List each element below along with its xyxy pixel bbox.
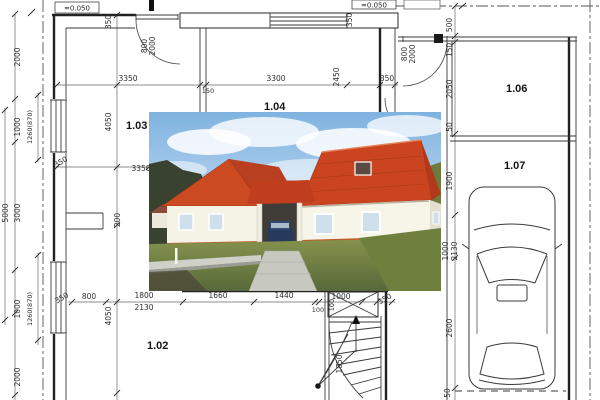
photo-post [175, 248, 178, 264]
dim-bot-1440: 1440 [274, 291, 293, 300]
photo-window [209, 214, 223, 230]
room-label-1-02: 1.02 [147, 340, 168, 352]
dim-left-3000: 3000 [13, 203, 22, 222]
room-label-1-04: 1.04 [264, 101, 286, 113]
dim-top-350: 350 [380, 74, 395, 83]
dim-right-50-bottom: 50 [443, 388, 452, 398]
dim-left-2000-top: 2000 [13, 47, 22, 66]
elevation-label-right: =0.050 [361, 2, 387, 10]
dim-inner-350: 350 [104, 15, 113, 30]
wall-stub [66, 213, 103, 229]
elevation-marks: =0.050 =0.050 [55, 0, 440, 13]
stair-newel-dot [315, 383, 321, 389]
house-photo [147, 112, 447, 291]
dim-bot-2130: 2130 [134, 303, 153, 312]
dim-top-3350: 3350 [118, 74, 137, 83]
dim-left-2000-bottom: 2000 [13, 367, 22, 386]
dim-stairs-100: 100 [328, 299, 336, 311]
dim-mid-3350: 3350 [131, 164, 150, 173]
elevation-label-left: =0.050 [64, 5, 90, 13]
dim-door1-2000: 2000 [148, 36, 157, 55]
dim-sill-top: 1260(870) [26, 110, 34, 144]
dim-bot-1800: 1800 [134, 291, 153, 300]
photo-window [179, 214, 193, 230]
dim-topwall-350: 350 [345, 13, 354, 28]
empty-box [404, 0, 440, 9]
dim-left-overall: 5000 [1, 203, 10, 222]
dim-inner-200: 200 [113, 213, 122, 228]
dim-inner-4050-bottom: 4050 [104, 306, 113, 325]
car-drawing [462, 187, 562, 389]
car-body [469, 187, 555, 389]
plan-svg: =0.050 =0.050 1.02 1.03 1.04 1.06 1.07 2… [0, 0, 600, 400]
car-windshield [477, 247, 547, 283]
top-wall-outline [180, 13, 398, 28]
dim-top-3300: 3300 [266, 74, 285, 83]
car-trunk-line [479, 380, 545, 385]
dim-right-2050: 2050 [445, 79, 454, 98]
dim-left-1000-top: 1000 [13, 117, 22, 136]
car-hood-line [474, 224, 550, 230]
dim-right-1900: 1900 [445, 171, 454, 190]
room-label-1-06: 1.06 [506, 83, 527, 95]
dim-stairs-1850: 1850 [335, 354, 344, 373]
car-sunroof [497, 285, 527, 301]
dim-bot-800: 800 [82, 292, 97, 301]
post-square [434, 34, 443, 43]
dim-door2-2000: 2000 [408, 44, 417, 63]
dim-right-500: 500 [445, 18, 454, 33]
dim-right-2130: 2130 [450, 241, 459, 260]
dim-sill-bottom: 1260(870) [26, 292, 34, 326]
dim-right-150: 150 [445, 43, 454, 58]
dim-bot-1660: 1660 [208, 291, 227, 300]
photo-skylight [355, 162, 371, 175]
room-label-1-07: 1.07 [504, 160, 525, 172]
room-label-1-03: 1.03 [126, 120, 147, 132]
dim-bot-100: 100 [312, 306, 324, 314]
dim-inner-4050-top: 4050 [104, 112, 113, 131]
stair-up-arrow [352, 315, 360, 324]
photo-window [362, 212, 380, 232]
dim-right-2600: 2600 [445, 318, 454, 337]
dim-right-1000: 1000 [441, 241, 450, 260]
car-rear-window [480, 343, 544, 379]
section-mark [149, 0, 154, 11]
photo-window [315, 214, 333, 234]
dim-top-150: 150 [202, 87, 214, 95]
dim-top-2450: 2450 [332, 67, 341, 86]
dim-left-1000-bottom: 1000 [13, 299, 22, 318]
dim-right-50-top: 50 [445, 122, 454, 132]
floor-plan-drawing: =0.050 =0.050 1.02 1.03 1.04 1.06 1.07 2… [0, 0, 600, 400]
